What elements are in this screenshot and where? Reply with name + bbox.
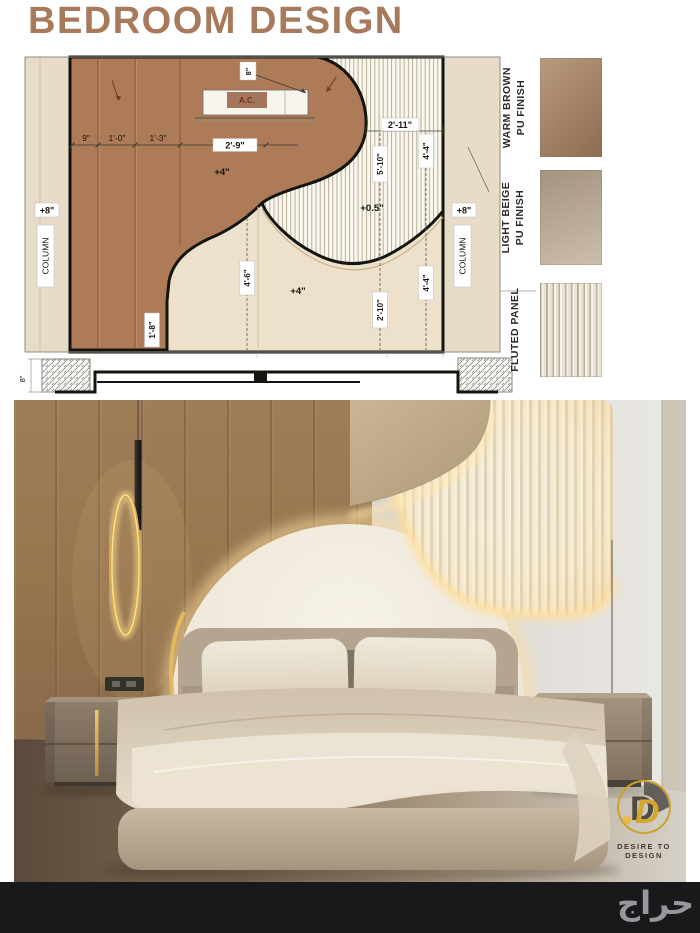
- legend-label-warm-brown: WARM BROWN PU FINISH: [492, 58, 536, 157]
- dim-2-10: 2'-10": [376, 299, 385, 321]
- dim-4-4-bottom: 4'-4": [422, 274, 431, 291]
- dim-2-9: 2'-9": [225, 141, 244, 151]
- projection-lines: [257, 353, 443, 358]
- legend-text: WARM BROWN: [500, 67, 514, 148]
- logo-monogram-icon: D D: [612, 778, 676, 840]
- legend-text: PU FINISH: [514, 182, 528, 254]
- page-title: BEDROOM DESIGN: [28, 0, 404, 43]
- legend-text: LIGHT BEIGE: [500, 182, 514, 254]
- dim-1-0: 1'-0": [109, 133, 126, 143]
- dim-5-10: 5'-10": [376, 153, 385, 175]
- dim-9in: 9": [82, 133, 90, 143]
- designer-logo: D D DESIRE TO DESIGN: [598, 778, 686, 860]
- ac-label: A.C.: [239, 96, 255, 105]
- bed-platform: [118, 808, 608, 870]
- dim-plus4-upper: +4": [214, 167, 229, 178]
- design-board: BEDROOM DESIGN: [0, 0, 700, 933]
- wall-switch: [105, 677, 144, 691]
- render-scene: [14, 400, 686, 882]
- legend-text: PU FINISH: [514, 67, 528, 148]
- legend-label-light-beige: LIGHT BEIGE PU FINISH: [492, 170, 536, 265]
- dim-ac-depth: 8": [244, 67, 253, 75]
- swatch-warm-brown: [540, 58, 602, 157]
- footer-bar: حراج: [0, 882, 700, 933]
- swatch-light-beige: [540, 170, 602, 265]
- logo-brand-text: DESIRE TO DESIGN: [598, 842, 686, 860]
- legend-text: FLUTED PANEL: [509, 288, 523, 372]
- column-label-left: COLUMN: [41, 238, 51, 275]
- watermark-text: حراج: [617, 884, 694, 922]
- bedroom-render: D D DESIRE TO DESIGN: [14, 400, 686, 882]
- wall-return-strip: [662, 400, 686, 795]
- legend-label-fluted: FLUTED PANEL: [496, 283, 536, 377]
- dim-1-8: 1'-8": [148, 321, 157, 338]
- logo-d-gold: D: [635, 793, 660, 831]
- ceiling-section-detail: 8": [18, 358, 512, 392]
- swatch-fluted-panel: [540, 283, 602, 377]
- dim-1-3: 1'-3": [150, 133, 167, 143]
- dim-4-4-top: 4'-4": [422, 142, 431, 159]
- dim-plus4-lower: +4": [290, 286, 305, 297]
- dim-plus8-right: +8": [457, 206, 472, 216]
- dim-4-6: 4'-6": [243, 269, 252, 286]
- column-label-right: COLUMN: [458, 238, 468, 275]
- dim-plus8-left: +8": [40, 206, 55, 216]
- dim-2-11: 2'-11": [388, 120, 412, 130]
- dim-section-8: 8": [18, 375, 27, 382]
- section-column-left: [42, 359, 90, 392]
- nightstand-gold-trim: [95, 710, 99, 776]
